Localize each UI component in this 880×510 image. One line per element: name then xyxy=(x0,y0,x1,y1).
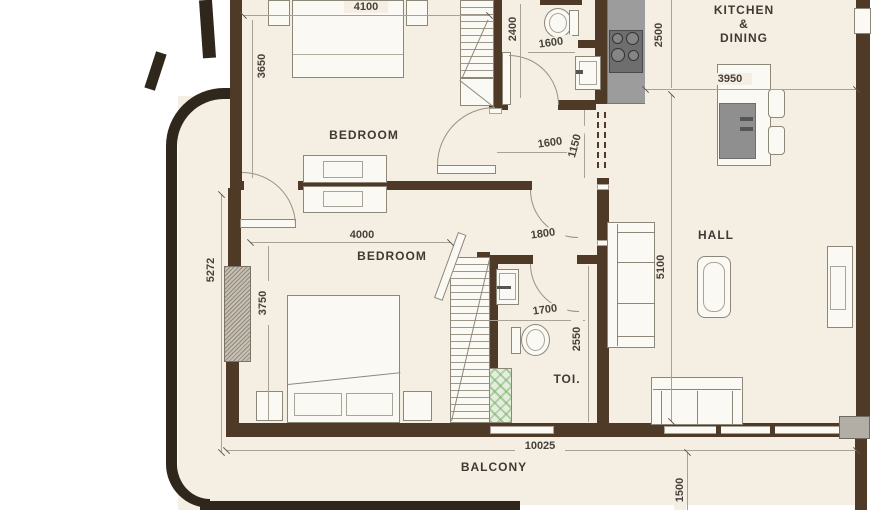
dimension-line xyxy=(645,89,856,90)
nightstand xyxy=(406,0,428,26)
coffee-table-top xyxy=(703,262,725,312)
burner-icon xyxy=(628,50,639,61)
pillow xyxy=(294,393,342,416)
sofa-arm-line xyxy=(732,391,733,424)
dimension-line xyxy=(671,0,672,88)
dimension-line xyxy=(687,452,688,510)
dim-1500: 1500 xyxy=(674,468,686,510)
toilet-wc-inner xyxy=(526,329,545,351)
building-outline-top-stub xyxy=(199,0,216,58)
dimension-line xyxy=(221,194,222,452)
toilet-tank xyxy=(569,10,579,36)
staircase-upper xyxy=(460,0,494,78)
sofa-cushion-line xyxy=(618,262,655,263)
room-label-kitchen-line1: KITCHEN xyxy=(704,4,784,17)
dresser-drawer xyxy=(323,191,363,207)
balcony-window-post-2 xyxy=(770,426,775,434)
room-label-toilet: TOI. xyxy=(542,373,592,386)
dim-2500: 2500 xyxy=(653,13,665,57)
sofa-cushion-line xyxy=(697,391,698,424)
dimension-line xyxy=(243,15,489,16)
room-label-balcony: BALCONY xyxy=(454,461,534,474)
corner-block xyxy=(839,416,870,439)
building-outline-bottom-curve xyxy=(166,450,210,508)
wall-bedroom1-left xyxy=(230,0,242,190)
sofa xyxy=(607,222,655,348)
nightstand xyxy=(403,391,432,421)
room-label-kitchen-line3: DINING xyxy=(704,32,784,45)
dim-4000: 4000 xyxy=(340,229,384,241)
room-label-hall: HALL xyxy=(686,229,746,242)
kitchen-opening-dashed-2 xyxy=(604,112,606,168)
room-label-bedroom-bottom: BEDROOM xyxy=(352,250,432,263)
dresser-drawer xyxy=(323,161,363,178)
dim-3650: 3650 xyxy=(256,44,268,88)
sofa-cushion-line xyxy=(618,303,655,304)
shaft-hatch xyxy=(489,368,512,423)
dimension-line xyxy=(528,52,575,53)
bed-blanket-line xyxy=(293,54,403,55)
dimension-line xyxy=(250,242,450,243)
bedroom1-door-leaf xyxy=(437,165,496,174)
ac-unit xyxy=(854,8,871,34)
stair-window xyxy=(490,426,554,434)
bedroom2-window-hatch xyxy=(224,266,251,362)
toilet-wc-inner xyxy=(549,13,567,33)
nightstand xyxy=(268,0,290,26)
wall-right xyxy=(856,0,870,425)
dim-2400: 2400 xyxy=(507,7,519,51)
balcony-window xyxy=(664,426,846,434)
burner-icon xyxy=(626,32,639,45)
building-outline-left xyxy=(166,150,177,462)
wall-bath-divider xyxy=(578,40,595,48)
dimension-line xyxy=(588,266,589,422)
washbasin-tap xyxy=(576,70,583,74)
dimension-line xyxy=(268,246,269,420)
sofa-cushion-line xyxy=(618,232,655,233)
sofa-back-line xyxy=(617,224,618,346)
dimension-line xyxy=(671,94,672,422)
dimension-line xyxy=(497,152,571,153)
dim-5100: 5100 xyxy=(655,245,667,289)
dim-5272: 5272 xyxy=(205,248,217,292)
burner-icon xyxy=(611,48,625,62)
dining-counter xyxy=(719,103,756,159)
door-frame-hall-top xyxy=(597,184,609,190)
pillow xyxy=(346,393,393,416)
dim-4100: 4100 xyxy=(344,1,388,13)
wall-bath-top-edge xyxy=(540,0,582,5)
dimension-line xyxy=(520,4,521,98)
dining-counter-detail xyxy=(740,127,753,131)
wall-bedroom2-left-upper xyxy=(228,188,241,268)
dim-3950: 3950 xyxy=(708,73,752,85)
room-label-bedroom-top: BEDROOM xyxy=(324,129,404,142)
dim-3750: 3750 xyxy=(257,281,269,325)
dimension-line xyxy=(252,20,253,178)
balcony-window-post-1 xyxy=(716,426,721,434)
kitchen-opening-dashed-1 xyxy=(597,112,599,168)
floor-plan: 4100 3650 2400 1600 2500 3950 1600 1150 … xyxy=(0,0,880,510)
room-label-kitchen-line2: & xyxy=(704,18,784,31)
sofa-arm-line xyxy=(661,391,662,424)
wall-toilet-top-right xyxy=(577,255,597,264)
wall-balcony-right xyxy=(855,437,867,510)
wall-bedroom2-left-lower xyxy=(226,360,239,425)
wall-bath-top-bottom-b xyxy=(558,100,596,110)
sofa-cushion-line xyxy=(618,336,655,337)
toilet-tank xyxy=(511,327,521,354)
washbasin-tap xyxy=(497,286,511,289)
dim-10025: 10025 xyxy=(515,440,565,452)
burner-icon xyxy=(612,33,623,44)
dining-counter-detail xyxy=(740,117,753,121)
tv-console-inner xyxy=(830,266,846,310)
chair xyxy=(768,89,785,118)
dimension-line xyxy=(584,110,585,178)
sofa-back-line xyxy=(653,389,741,390)
dim-2550: 2550 xyxy=(571,317,583,361)
building-outline-bottom-band xyxy=(200,501,520,510)
building-outline-corner-stub xyxy=(144,51,166,91)
chair xyxy=(768,126,785,155)
nightstand xyxy=(256,391,283,421)
